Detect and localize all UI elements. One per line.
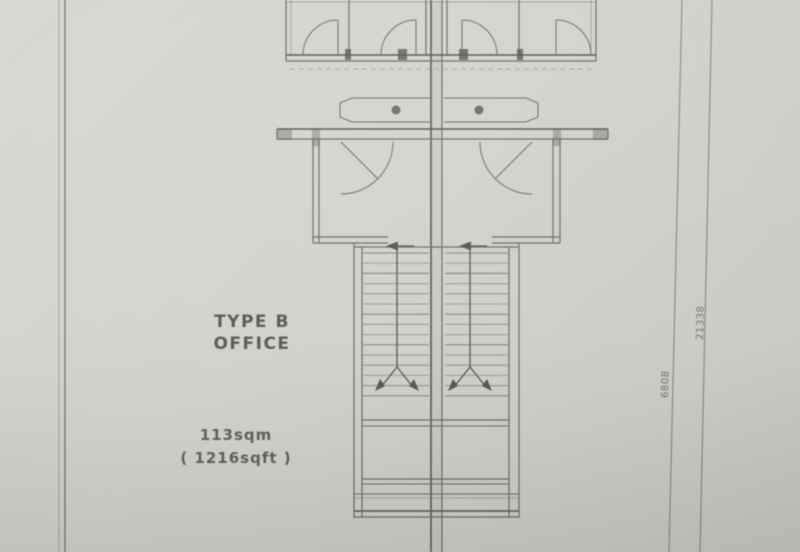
stair-direction-arrow-left	[375, 242, 419, 392]
dimension-line-inner	[669, 0, 682, 552]
dimension-text-outer: 21338	[695, 306, 707, 341]
floor-plan-drawing: 6808 21338 TYPE B OFFICE 113sqm ( 1216sq…	[0, 0, 800, 552]
dimension-text-inner: 6808	[660, 370, 672, 398]
office-room-right	[480, 139, 560, 243]
washbasin-counter-left	[340, 98, 430, 122]
unit-type-label: TYPE B OFFICE	[213, 312, 290, 354]
room-door-left	[341, 142, 393, 194]
floor-plan-photo: 6808 21338 TYPE B OFFICE 113sqm ( 1216sq…	[0, 0, 800, 552]
room-door-right	[480, 142, 532, 194]
dimension-line-outer	[700, 0, 712, 552]
area-label-sqft: ( 1216sqft )	[180, 449, 291, 467]
toilet-stall-door	[303, 20, 338, 55]
left-boundary-wall	[59, 0, 65, 552]
stair-flight-left	[363, 253, 429, 396]
dimension-lines: 6808 21338	[660, 0, 712, 552]
toilet-stall-door	[556, 20, 591, 55]
office-room-left	[313, 139, 393, 243]
type-label-line2: OFFICE	[213, 334, 290, 354]
stair-direction-arrow-right	[448, 242, 492, 392]
area-label-sqm: 113sqm	[200, 426, 273, 444]
central-party-wall	[431, 0, 442, 552]
washbasin-counter-right	[444, 98, 538, 122]
type-label-line1: TYPE B	[214, 312, 290, 332]
unit-area-label: 113sqm ( 1216sqft )	[180, 426, 291, 467]
